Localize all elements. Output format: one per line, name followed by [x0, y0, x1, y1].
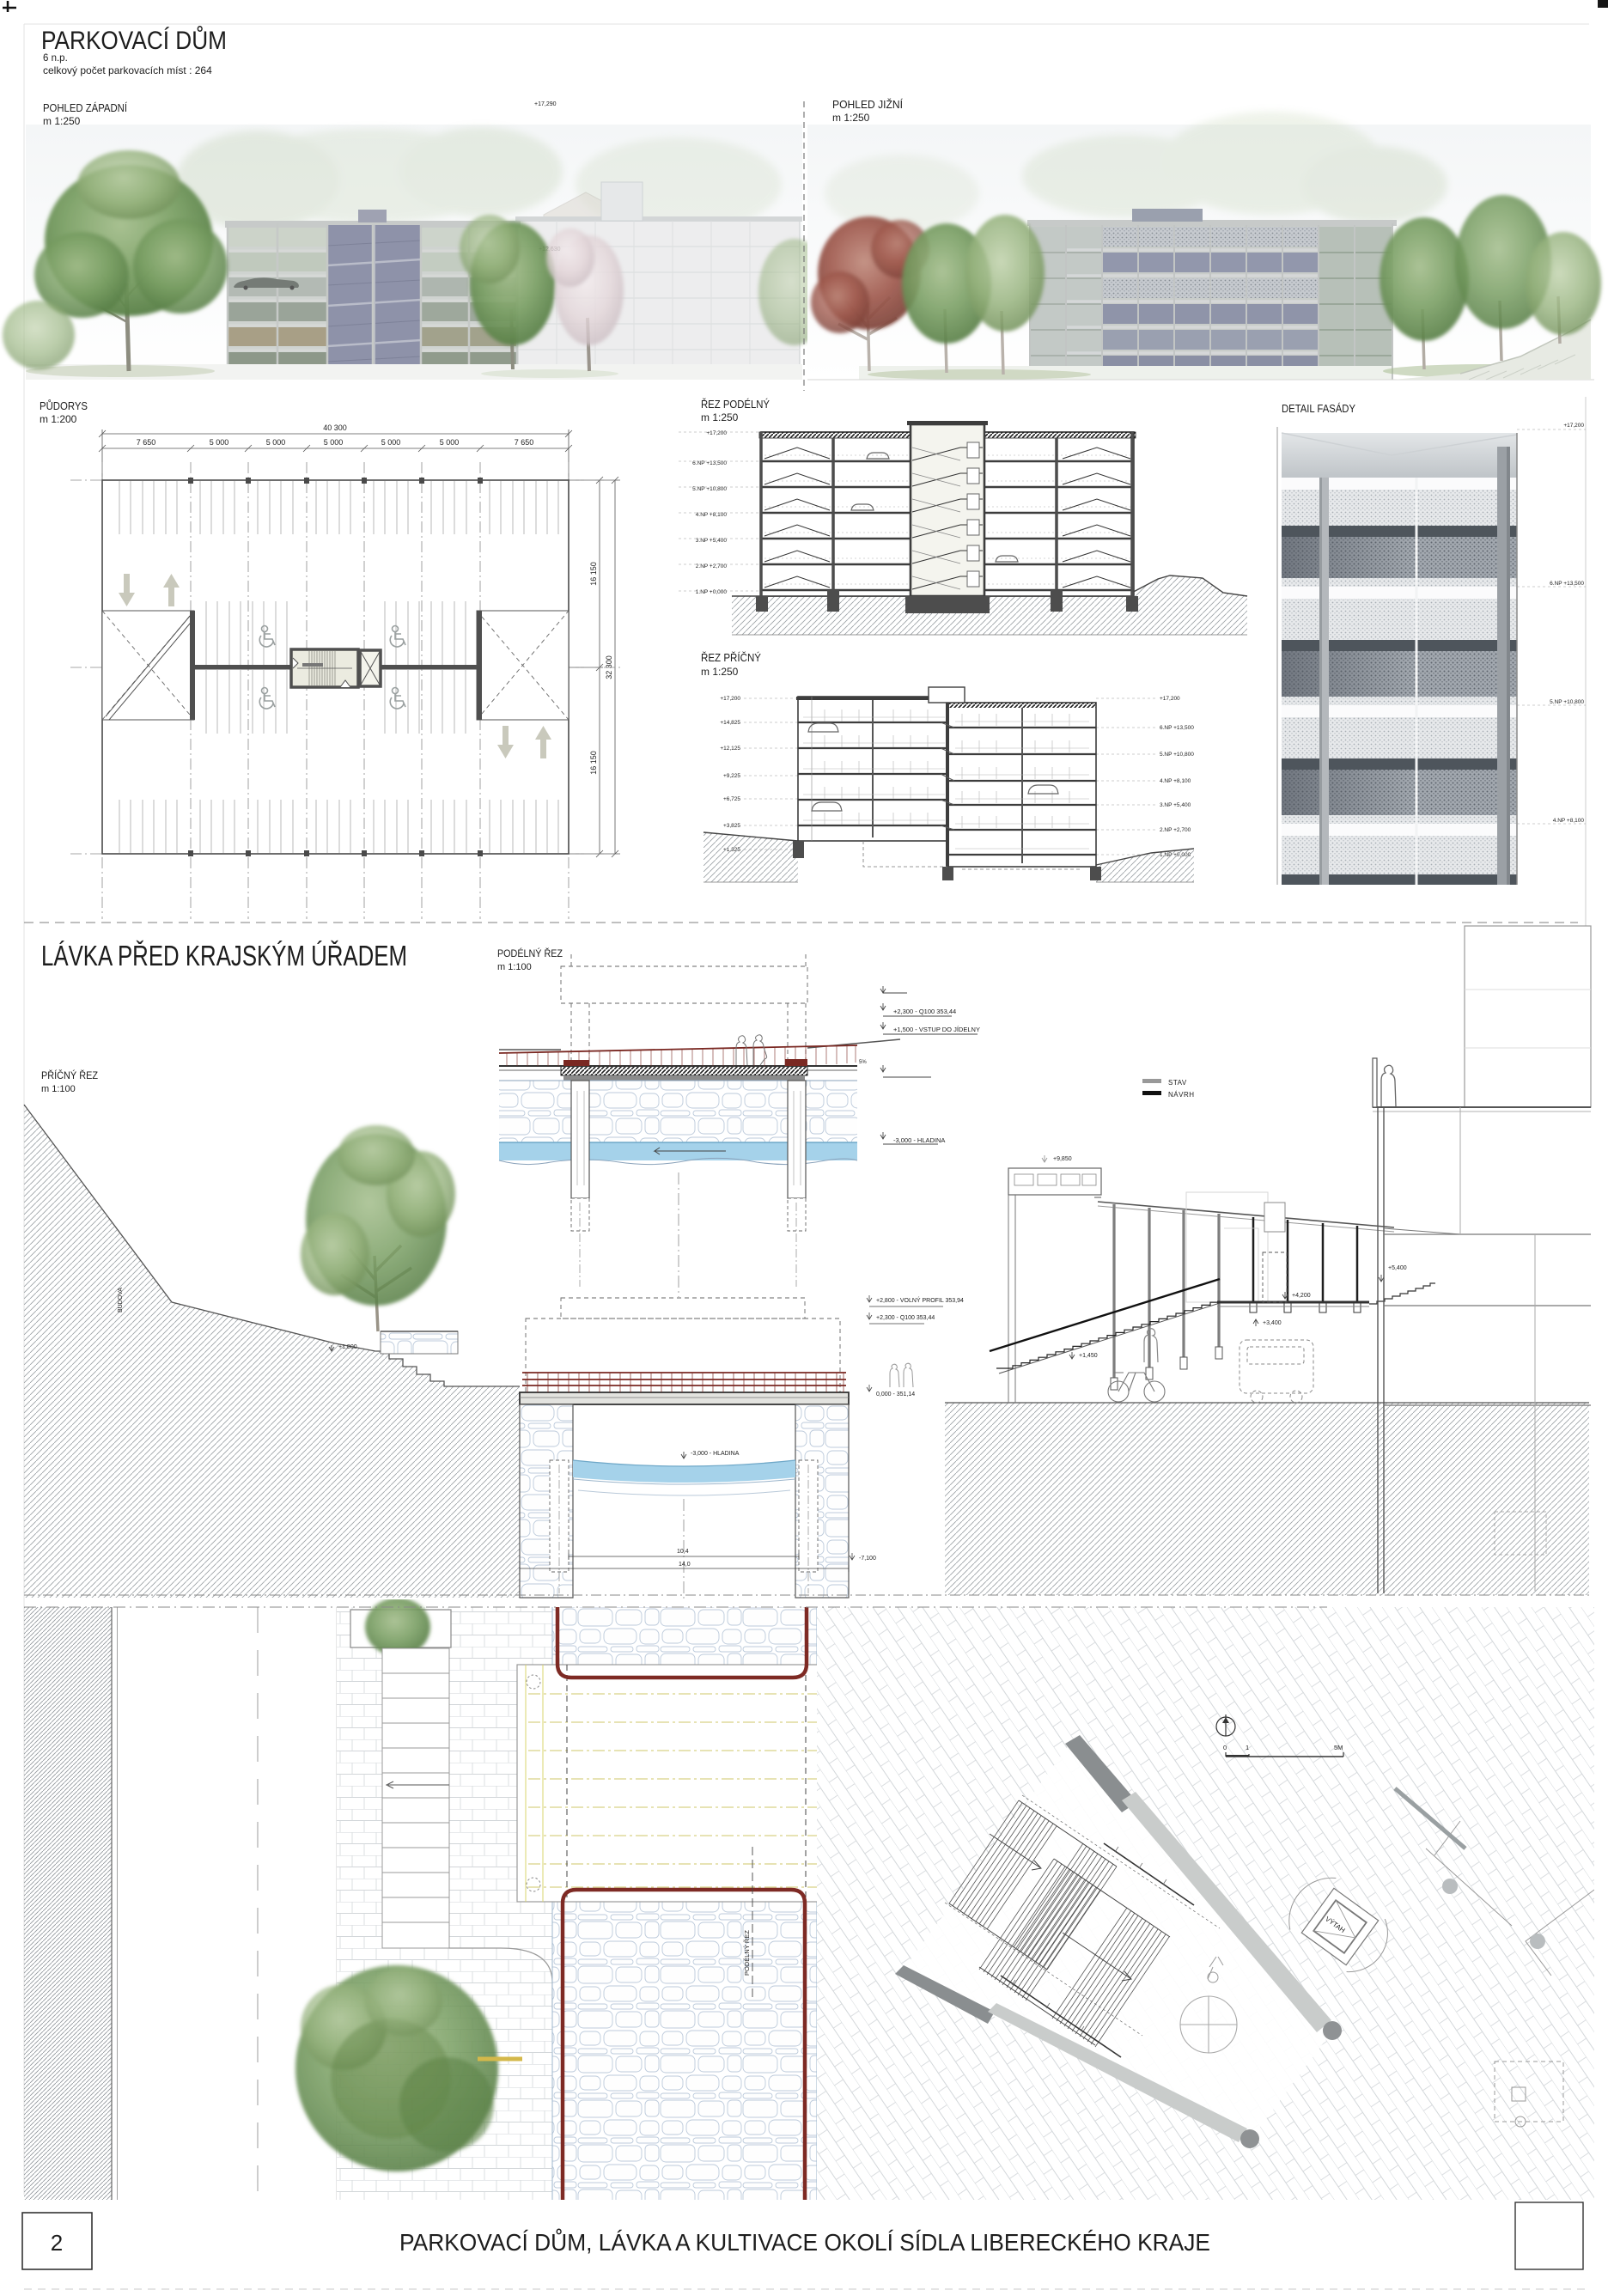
svg-text:0,000 - 351,14: 0,000 - 351,14 — [876, 1392, 915, 1398]
svg-text:m 1:250: m 1:250 — [701, 666, 739, 678]
svg-text:6 n.p.: 6 n.p. — [43, 53, 68, 64]
svg-text:+1,450: +1,450 — [1079, 1353, 1098, 1359]
svg-text:5 000: 5 000 — [381, 438, 401, 447]
svg-text:ŘEZ PŘÍČNÝ: ŘEZ PŘÍČNÝ — [701, 651, 761, 664]
svg-text:DETAIL FASÁDY: DETAIL FASÁDY — [1282, 402, 1355, 415]
svg-text:m 1:250: m 1:250 — [701, 411, 739, 423]
svg-text:PARKOVACÍ DŮM, LÁVKA A KULTIVA: PARKOVACÍ DŮM, LÁVKA A KULTIVACE OKOLÍ S… — [399, 2228, 1210, 2256]
svg-text:PARKOVACÍ DŮM: PARKOVACÍ DŮM — [41, 26, 227, 55]
svg-text:5 000: 5 000 — [266, 438, 286, 447]
svg-text:+1,800: +1,800 — [338, 1344, 357, 1350]
svg-text:POHLED ZÁPADNÍ: POHLED ZÁPADNÍ — [43, 101, 127, 114]
svg-text:+14,825: +14,825 — [720, 720, 740, 726]
svg-text:16 150: 16 150 — [589, 562, 598, 586]
svg-text:6.NP +13,500: 6.NP +13,500 — [1550, 581, 1584, 587]
svg-text:+9,850: +9,850 — [1053, 1156, 1072, 1162]
svg-text:+9,225: +9,225 — [723, 773, 740, 779]
svg-text:-7,100: -7,100 — [859, 1556, 876, 1562]
svg-text:celkový počet parkovacích míst: celkový počet parkovacích míst : 264 — [43, 64, 212, 76]
svg-text:0: 0 — [1223, 1744, 1227, 1751]
svg-text:NÁVRH: NÁVRH — [1168, 1091, 1195, 1099]
svg-text:+17,290: +17,290 — [534, 101, 557, 107]
svg-text:POHLED JIŽNÍ: POHLED JIŽNÍ — [832, 98, 903, 111]
svg-text:5.NP +10,800: 5.NP +10,800 — [1160, 752, 1194, 758]
svg-text:5 000: 5 000 — [210, 438, 229, 447]
svg-text:-3,000 - HLADINA: -3,000 - HLADINA — [691, 1451, 740, 1457]
svg-text:4.NP +8,100: 4.NP +8,100 — [1160, 778, 1191, 784]
svg-text:4.NP +8,100: 4.NP +8,100 — [1553, 818, 1585, 824]
svg-text:LÁVKA PŘED KRAJSKÝM ÚŘADEM: LÁVKA PŘED KRAJSKÝM ÚŘADEM — [41, 940, 407, 971]
svg-text:+3,825: +3,825 — [723, 823, 740, 829]
svg-text:+6,725: +6,725 — [723, 796, 740, 802]
svg-text:+12,125: +12,125 — [720, 746, 740, 752]
svg-text:2.NP +2,700: 2.NP +2,700 — [1160, 827, 1191, 833]
svg-text:7 650: 7 650 — [137, 438, 156, 447]
svg-text:6.NP +13,500: 6.NP +13,500 — [1160, 725, 1194, 731]
svg-text:-3,000 - HLADINA: -3,000 - HLADINA — [893, 1136, 945, 1144]
svg-text:m 1:250: m 1:250 — [832, 112, 870, 124]
svg-text:+2,300 - Q100 353,44: +2,300 - Q100 353,44 — [893, 1008, 956, 1015]
svg-text:5 000: 5 000 — [324, 438, 344, 447]
svg-text:14,0: 14,0 — [679, 1562, 691, 1568]
svg-text:3.NP +5,400: 3.NP +5,400 — [1160, 802, 1191, 808]
svg-text:16 150: 16 150 — [589, 751, 598, 775]
svg-text:+2,300 - Q100 353,44: +2,300 - Q100 353,44 — [876, 1315, 935, 1321]
svg-text:5%: 5% — [859, 1060, 867, 1065]
svg-text:PODÉLNÝ ŘEZ: PODÉLNÝ ŘEZ — [743, 1930, 751, 1976]
svg-text:+17,200: +17,200 — [1563, 423, 1584, 429]
svg-text:40 300: 40 300 — [323, 423, 347, 432]
svg-text:m 1:200: m 1:200 — [40, 413, 77, 425]
svg-text:5 000: 5 000 — [440, 438, 460, 447]
svg-text:2: 2 — [51, 2230, 63, 2256]
svg-text:ŘEZ PODÉLNÝ: ŘEZ PODÉLNÝ — [701, 398, 770, 411]
svg-text:7 650: 7 650 — [515, 438, 534, 447]
svg-text:+4,200: +4,200 — [1292, 1293, 1311, 1299]
svg-text:+2,800 - VOLNÝ PROFIL 353,94: +2,800 - VOLNÝ PROFIL 353,94 — [876, 1296, 964, 1304]
svg-text:PŮDORYS: PŮDORYS — [40, 399, 88, 412]
svg-text:+17,200: +17,200 — [720, 696, 740, 702]
svg-text:+3,400: +3,400 — [1263, 1320, 1282, 1326]
svg-text:5M: 5M — [1334, 1744, 1343, 1751]
svg-text:m 1:100: m 1:100 — [497, 962, 532, 972]
svg-text:m 1:100: m 1:100 — [41, 1084, 76, 1094]
svg-text:+17,200: +17,200 — [1160, 696, 1180, 702]
svg-text:5.NP +10,800: 5.NP +10,800 — [1550, 699, 1584, 705]
svg-text:PŘÍČNÝ ŘEZ: PŘÍČNÝ ŘEZ — [41, 1069, 98, 1081]
svg-text:1: 1 — [1246, 1744, 1249, 1751]
svg-text:PODÉLNÝ ŘEZ: PODÉLNÝ ŘEZ — [497, 947, 563, 959]
svg-text:10,4: 10,4 — [677, 1549, 689, 1555]
svg-text:+1,500 - VSTUP DO JÍDELNY: +1,500 - VSTUP DO JÍDELNY — [893, 1026, 980, 1033]
svg-text:+5,400: +5,400 — [1388, 1265, 1407, 1271]
svg-text:+17,200: +17,200 — [706, 430, 727, 436]
svg-text:1.NP +0,000: 1.NP +0,000 — [696, 589, 728, 595]
svg-text:BUDOVA: BUDOVA — [118, 1288, 124, 1312]
svg-text:STAV: STAV — [1168, 1079, 1187, 1087]
